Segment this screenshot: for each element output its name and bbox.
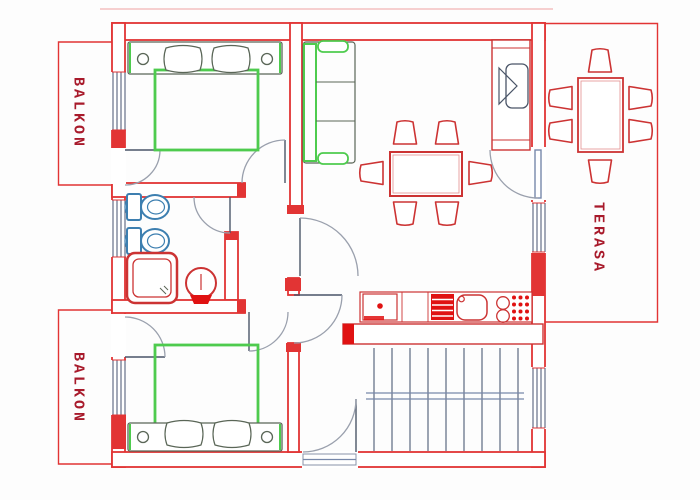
dining-set — [360, 121, 493, 226]
kitchen-sink — [457, 295, 487, 320]
dining-chair — [394, 121, 417, 144]
door-arc-entrance — [303, 399, 356, 452]
door-arc-bedroom1 — [242, 140, 285, 183]
toilet-2 — [127, 228, 169, 254]
outer-walls — [112, 23, 545, 467]
dining-table — [390, 152, 462, 196]
bed-2 — [155, 345, 258, 427]
terrace-chair — [549, 87, 572, 110]
shower — [127, 253, 177, 303]
bed-1 — [155, 70, 258, 150]
bedside-lamp — [262, 54, 273, 65]
drainer — [431, 294, 454, 320]
terrace-chair — [629, 120, 652, 143]
door-arc-terrace — [490, 150, 538, 198]
dining-chair — [394, 202, 417, 225]
balcony-top-label: BALKON — [70, 77, 87, 149]
terrace-label: TERASA — [590, 202, 607, 274]
dining-chair — [436, 202, 459, 225]
bedside-lamp — [138, 432, 149, 443]
stairs — [366, 348, 524, 451]
terrace-chair — [589, 160, 612, 183]
pillow — [164, 46, 202, 73]
terrace-chair — [549, 120, 572, 143]
dining-chair — [360, 162, 383, 185]
wall-stub — [532, 252, 545, 296]
door-arc-bathroom — [194, 197, 230, 233]
wall-top — [112, 23, 545, 40]
wall-hall-lower — [288, 343, 299, 452]
door-arc-bedroom1-balcony — [125, 150, 160, 185]
bathroom — [125, 194, 216, 304]
door-arc-bedroom2-balcony — [125, 317, 165, 357]
bed-headboard — [128, 423, 282, 451]
cooker — [363, 294, 397, 321]
kitchen-bar — [343, 324, 543, 344]
tv-cabinet — [492, 40, 530, 150]
pillow — [212, 46, 250, 73]
toilet-1 — [127, 194, 169, 220]
pillow — [165, 421, 203, 448]
bedroom-top — [128, 42, 282, 150]
door-arc-hall — [294, 295, 342, 343]
bedside-lamp — [138, 54, 149, 65]
pillow — [213, 421, 251, 448]
bedside-lamp — [262, 432, 273, 443]
dining-chair — [436, 121, 459, 144]
dining-chair — [469, 162, 492, 185]
sofa — [303, 41, 355, 164]
wall-stub — [112, 130, 125, 148]
floor-plan-image: BALKON BALKON TERASA — [0, 0, 700, 500]
kitchen — [343, 292, 543, 344]
wall-bedroom1-living — [290, 23, 302, 213]
terrace-chair — [589, 49, 612, 72]
terrace-chair — [629, 87, 652, 110]
wall-stub — [112, 415, 126, 449]
door-arc-living — [300, 218, 358, 276]
terrace-table — [578, 78, 623, 152]
bedroom-bottom — [128, 345, 282, 451]
windows — [111, 72, 546, 429]
floor-plan: BALKON BALKON TERASA — [0, 0, 700, 500]
washbasin — [186, 268, 216, 304]
balcony-bottom-label: BALKON — [70, 352, 87, 424]
terrace-dining-set — [549, 49, 653, 184]
wall-bathroom-east — [225, 232, 238, 300]
living-room — [303, 40, 530, 225]
